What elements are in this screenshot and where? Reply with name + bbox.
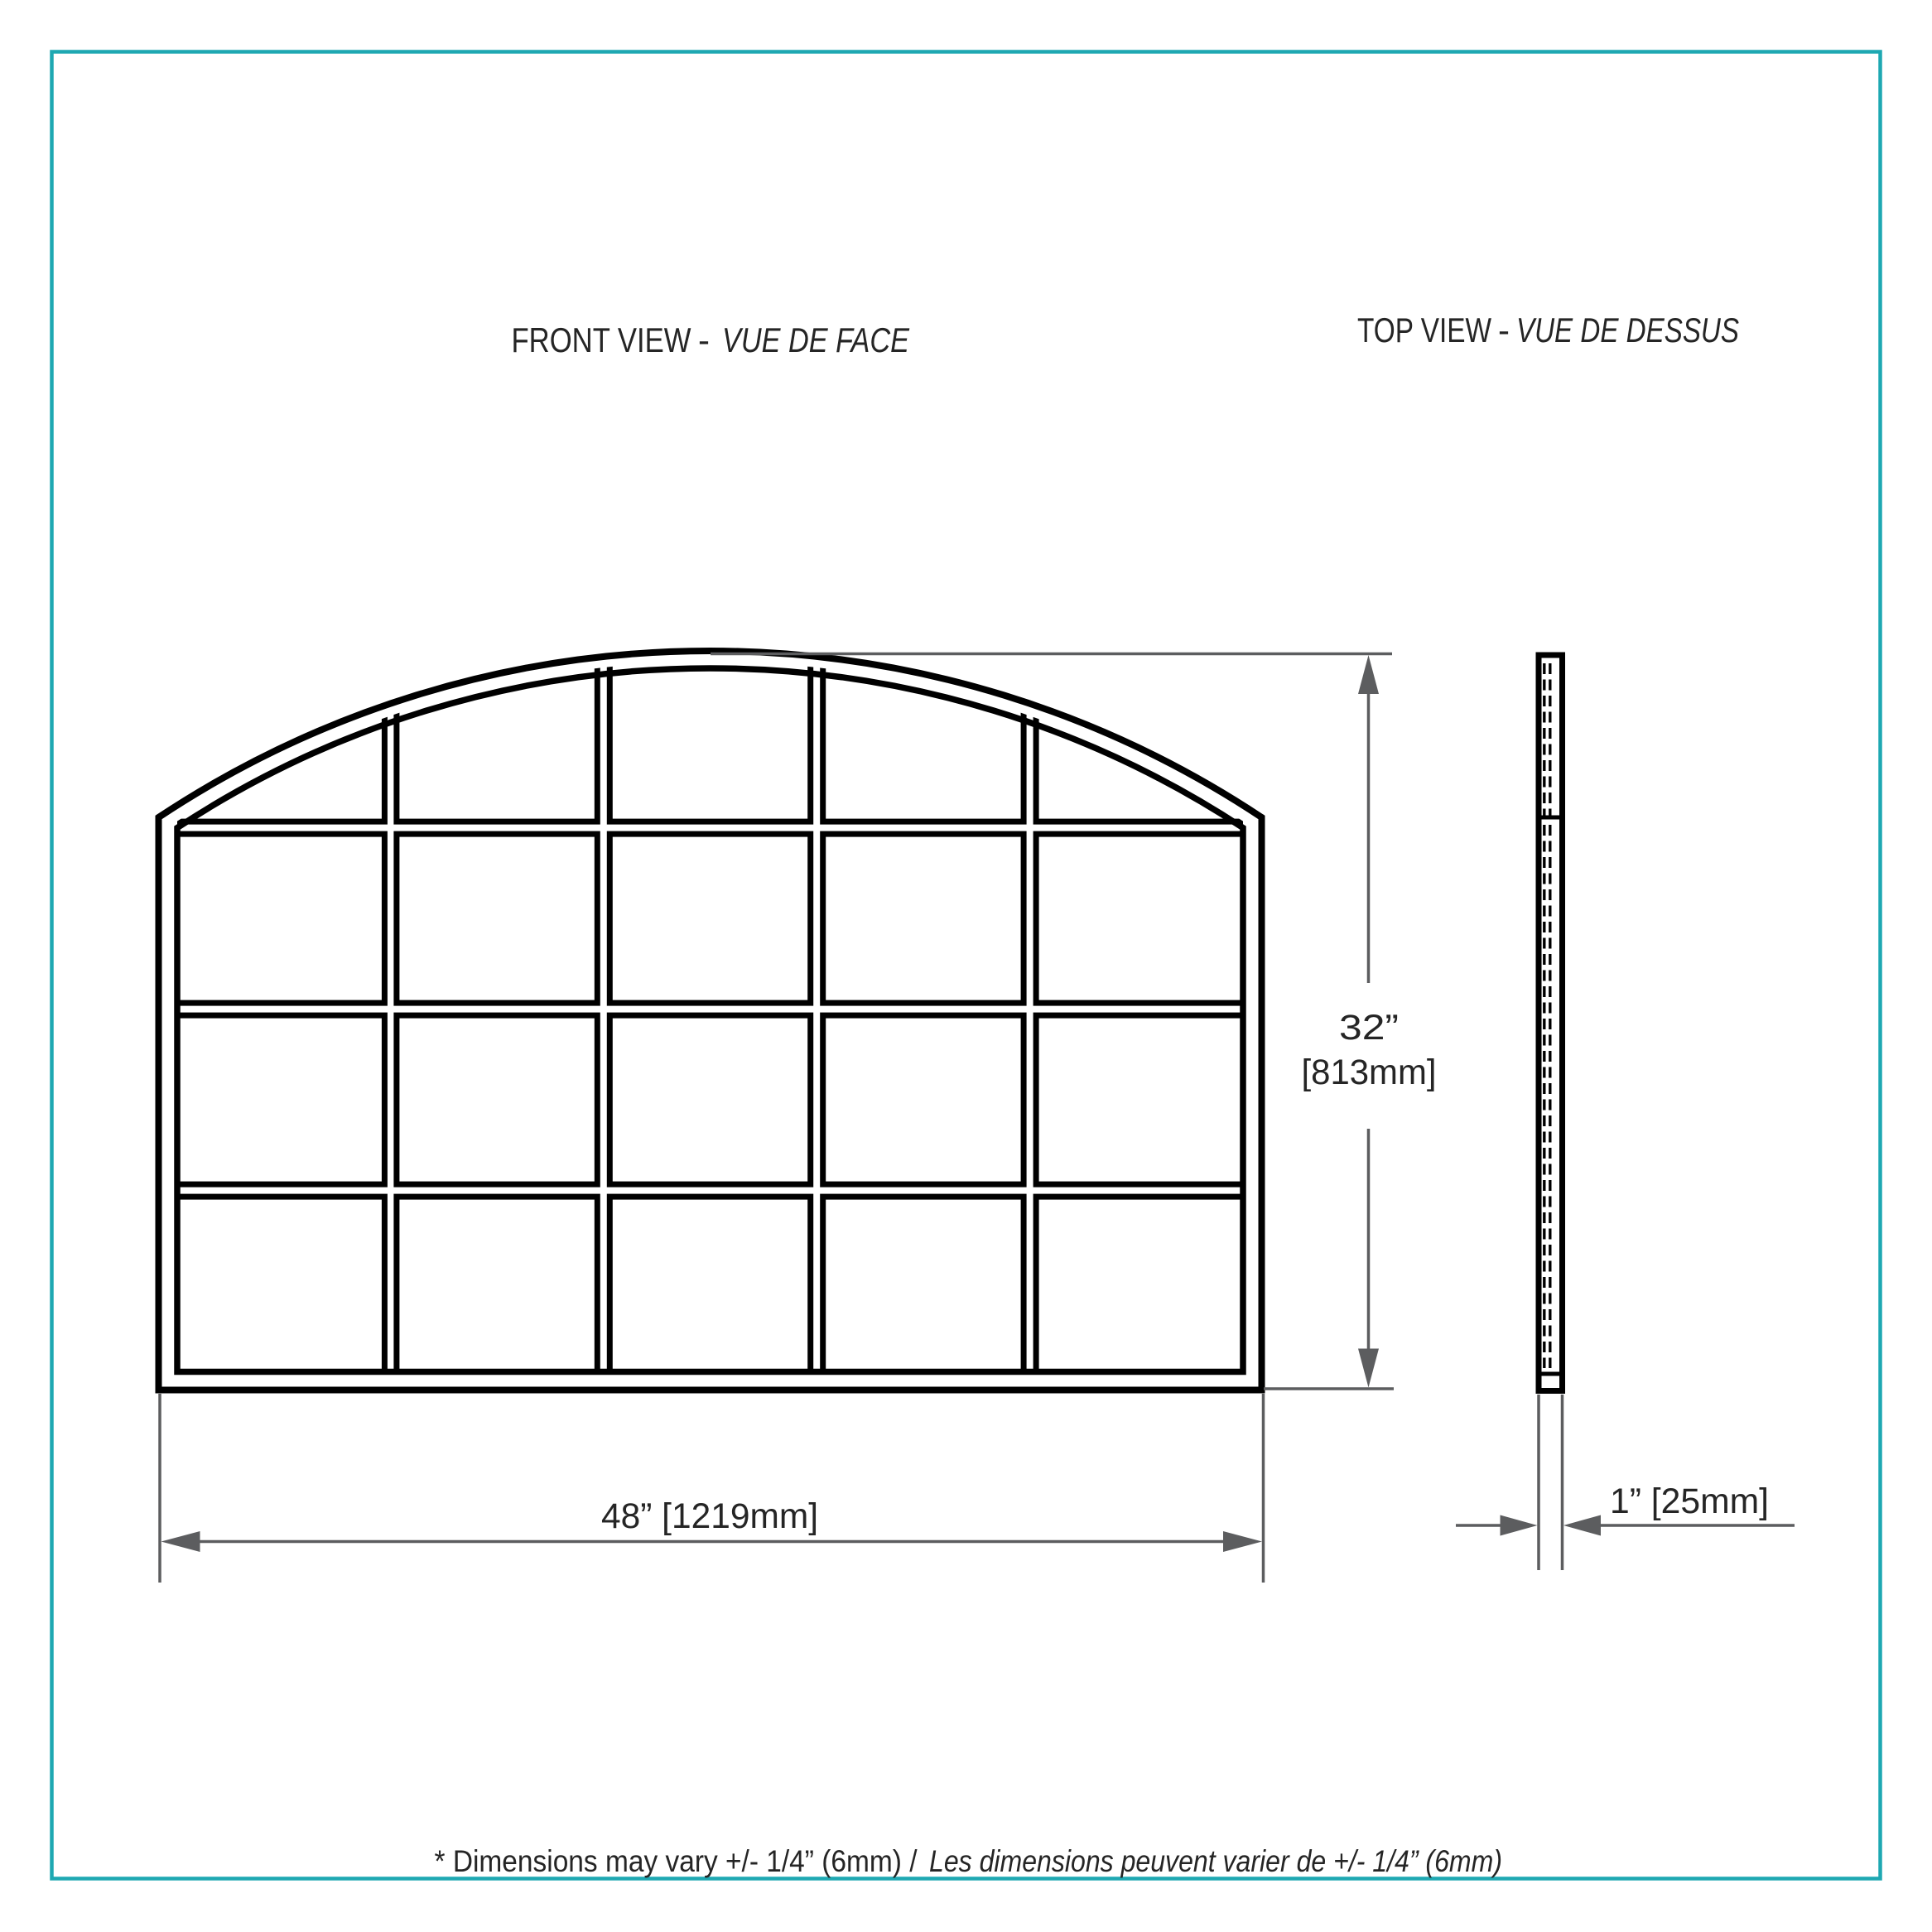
svg-text:VUE DE DESSUS: VUE DE DESSUS bbox=[1516, 311, 1739, 349]
svg-text:FRONT VIEW: FRONT VIEW bbox=[512, 320, 691, 359]
svg-text:1” [25mm]: 1” [25mm] bbox=[1610, 1482, 1769, 1521]
svg-text:[813mm]: [813mm] bbox=[1302, 1053, 1437, 1092]
svg-text:-: - bbox=[1498, 311, 1510, 349]
svg-text:32”: 32” bbox=[1339, 1008, 1399, 1048]
svg-text:-: - bbox=[698, 320, 710, 359]
svg-text:Les dimensions peuvent varier: Les dimensions peuvent varier de +/- 1/4… bbox=[929, 1844, 1502, 1878]
svg-text:TOP VIEW: TOP VIEW bbox=[1357, 311, 1491, 349]
svg-text:VUE DE FACE: VUE DE FACE bbox=[722, 320, 910, 359]
svg-text:* Dimensions may vary +/- 1/4”: * Dimensions may vary +/- 1/4” (6mm) / bbox=[435, 1844, 918, 1878]
svg-text:48” [1219mm]: 48” [1219mm] bbox=[601, 1496, 818, 1536]
